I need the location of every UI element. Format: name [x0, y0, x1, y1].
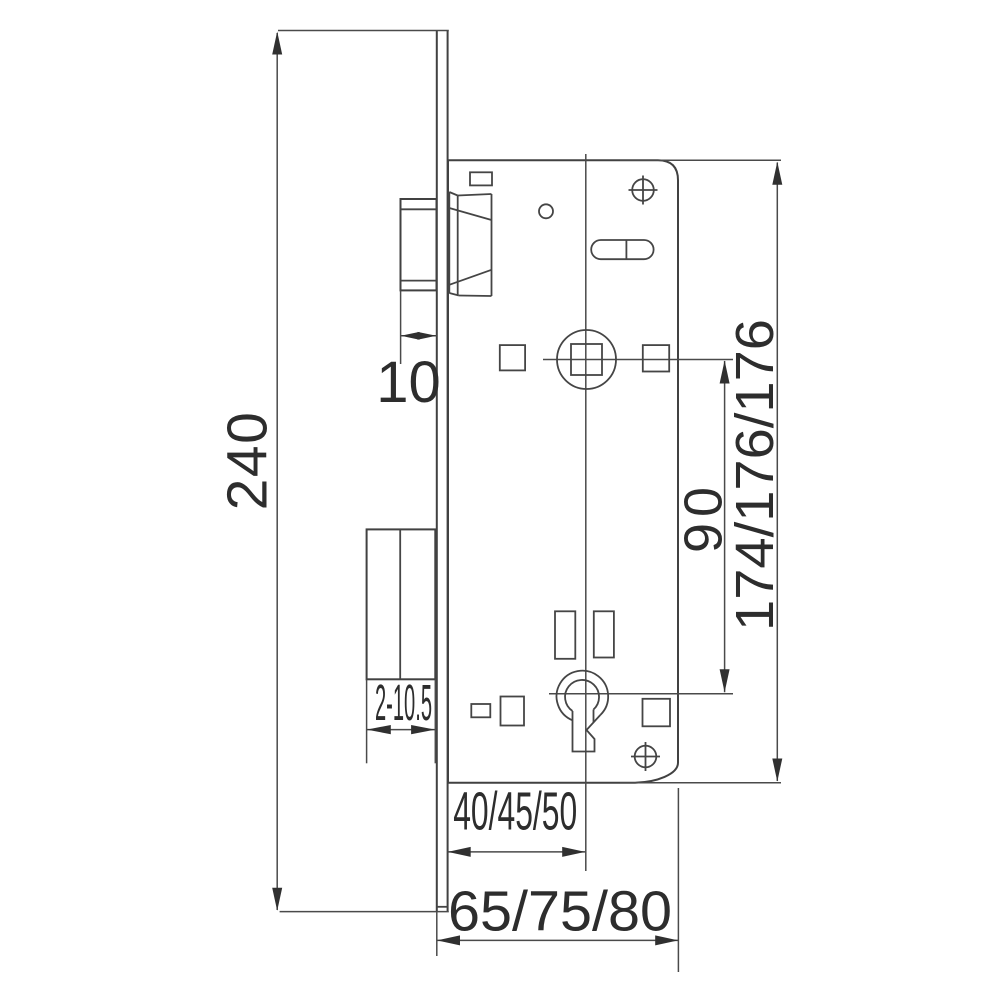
svg-text:240: 240: [216, 411, 280, 511]
svg-text:65/75/80: 65/75/80: [448, 880, 672, 944]
svg-text:10: 10: [376, 350, 441, 415]
svg-text:174/176/176: 174/176/176: [725, 319, 785, 631]
svg-text:2-10.5: 2-10.5: [375, 674, 432, 731]
svg-text:40/45/50: 40/45/50: [453, 782, 577, 842]
